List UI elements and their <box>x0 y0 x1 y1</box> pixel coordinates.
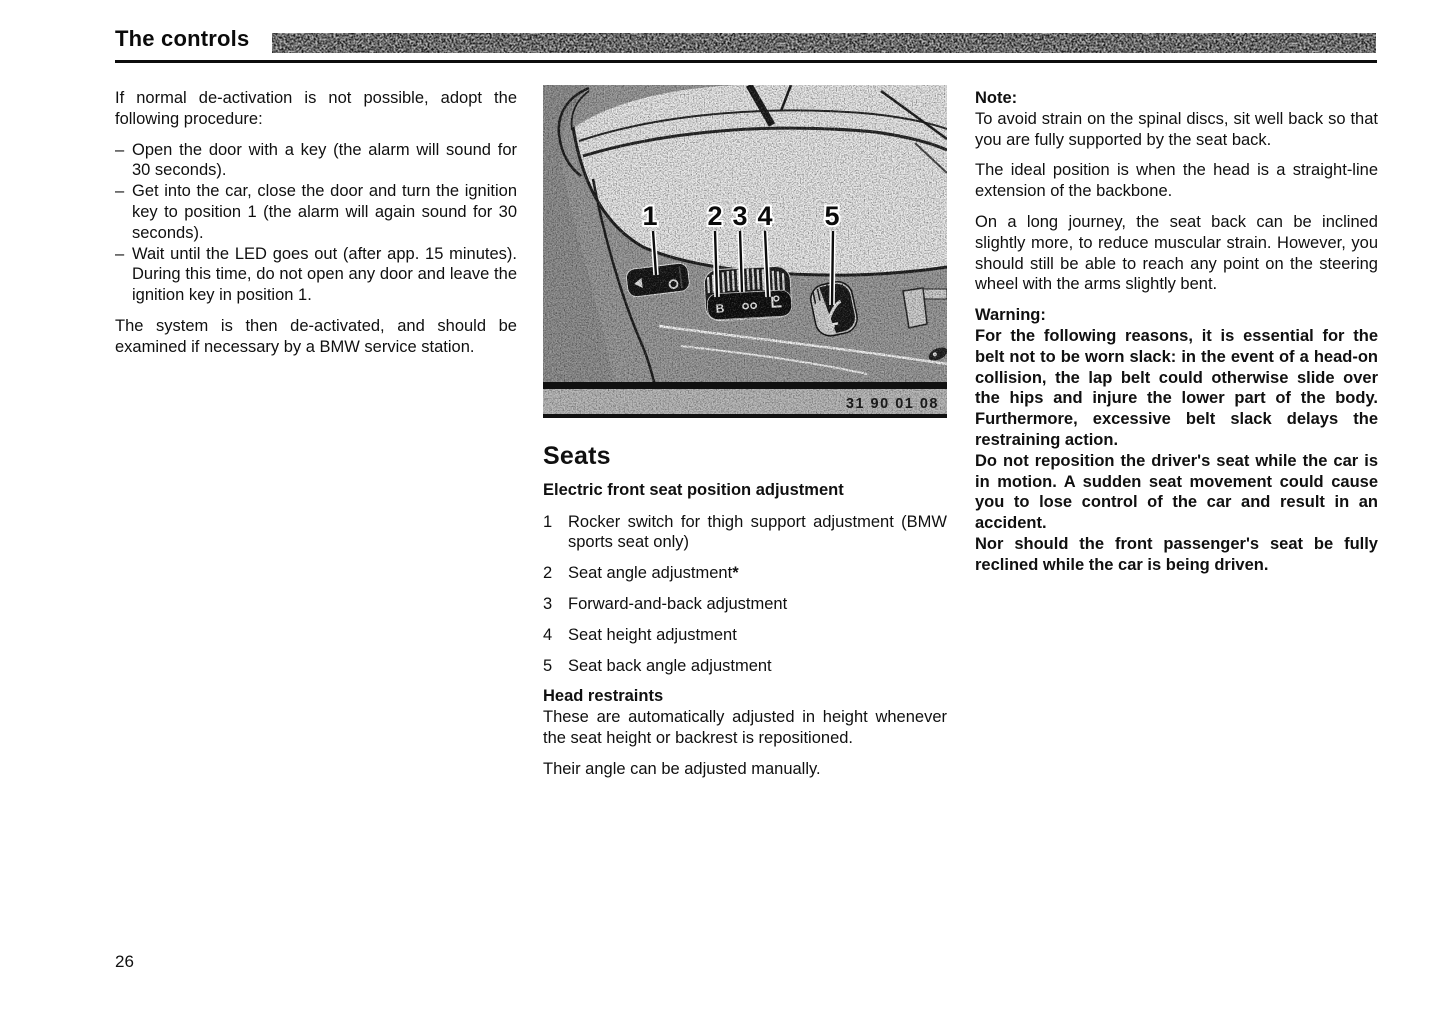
item-number: 4 <box>543 625 552 646</box>
callout-2: 2 <box>707 201 722 231</box>
note-paragraph: The ideal position is when the head is a… <box>975 160 1378 202</box>
list-item: – Get into the car, close the door and t… <box>115 181 517 243</box>
list-item: 1 Rocker switch for thigh support adjust… <box>543 512 947 554</box>
page-title: The controls <box>115 26 249 52</box>
list-item: 3 Forward-and-back adjustment <box>543 594 947 615</box>
list-item: – Wait until the LED goes out (after app… <box>115 244 517 306</box>
list-item: 5 Seat back angle adjustment <box>543 656 947 677</box>
item-text: Rocker switch for thigh support adjustme… <box>568 513 947 552</box>
list-item: 4 Seat height adjustment <box>543 625 947 646</box>
item-text: Seat back angle adjustment <box>568 657 772 675</box>
bullet-dash: – <box>115 244 124 265</box>
callout-5: 5 <box>824 201 839 231</box>
header-rule <box>115 60 1377 63</box>
page-number: 26 <box>115 952 134 972</box>
list-item: – Open the door with a key (the alarm wi… <box>115 140 517 182</box>
right-column: Note: To avoid strain on the spinal disc… <box>975 88 1378 576</box>
head-restraints-title: Head restraints <box>543 686 947 707</box>
figure-seat-controls: B 1 2 <box>543 85 947 418</box>
item-text: Forward-and-back adjustment <box>568 595 787 613</box>
item-number: 1 <box>543 512 552 533</box>
note-paragraph: To avoid strain on the spinal discs, sit… <box>975 109 1378 151</box>
head-restraints-note: Their angle can be adjusted manually. <box>543 759 947 780</box>
warning-paragraph: Nor should the front passenger's seat be… <box>975 534 1378 576</box>
photo-ref-number: 31 90 01 08 <box>846 396 939 412</box>
bullet-text: Get into the car, close the door and tur… <box>132 182 517 242</box>
callout-3: 3 <box>732 201 747 231</box>
list-item: 2 Seat angle adjustment* <box>543 563 947 584</box>
head-restraints-body: These are automatically adjusted in heig… <box>543 707 947 749</box>
callout-1: 1 <box>642 201 657 231</box>
callout-4: 4 <box>757 201 772 231</box>
note-title: Note: <box>975 88 1378 109</box>
item-number: 3 <box>543 594 552 615</box>
item-text: Seat height adjustment <box>568 626 737 644</box>
section-title-seats: Seats <box>543 446 947 467</box>
middle-column: B 1 2 <box>543 85 947 780</box>
item-number: 2 <box>543 563 552 584</box>
deactivation-closing: The system is then de-activated, and sho… <box>115 316 517 358</box>
item-number: 5 <box>543 656 552 677</box>
header-texture-band <box>272 33 1376 53</box>
bullet-text: Open the door with a key (the alarm will… <box>132 141 517 180</box>
bullet-dash: – <box>115 140 124 161</box>
warning-paragraph: For the following reasons, it is essenti… <box>975 326 1378 451</box>
left-column: If normal de-activation is not possible,… <box>115 88 517 368</box>
seat-adjustment-list: 1 Rocker switch for thigh support adjust… <box>543 512 947 677</box>
manual-page: The controls If normal de-activation is … <box>0 0 1445 1019</box>
subsection-title-electric-adjustment: Electric front seat position adjustment <box>543 480 947 501</box>
bullet-dash: – <box>115 181 124 202</box>
warning-title: Warning: <box>975 305 1378 326</box>
item-suffix: * <box>732 564 738 582</box>
deactivation-intro: If normal de-activation is not possible,… <box>115 88 517 130</box>
warning-paragraph: Do not reposition the driver's seat whil… <box>975 451 1378 534</box>
warning-block: Warning: For the following reasons, it i… <box>975 305 1378 575</box>
bullet-text: Wait until the LED goes out (after app. … <box>132 245 517 305</box>
item-text: Seat angle adjustment <box>568 564 732 582</box>
note-paragraph: On a long journey, the seat back can be … <box>975 212 1378 295</box>
